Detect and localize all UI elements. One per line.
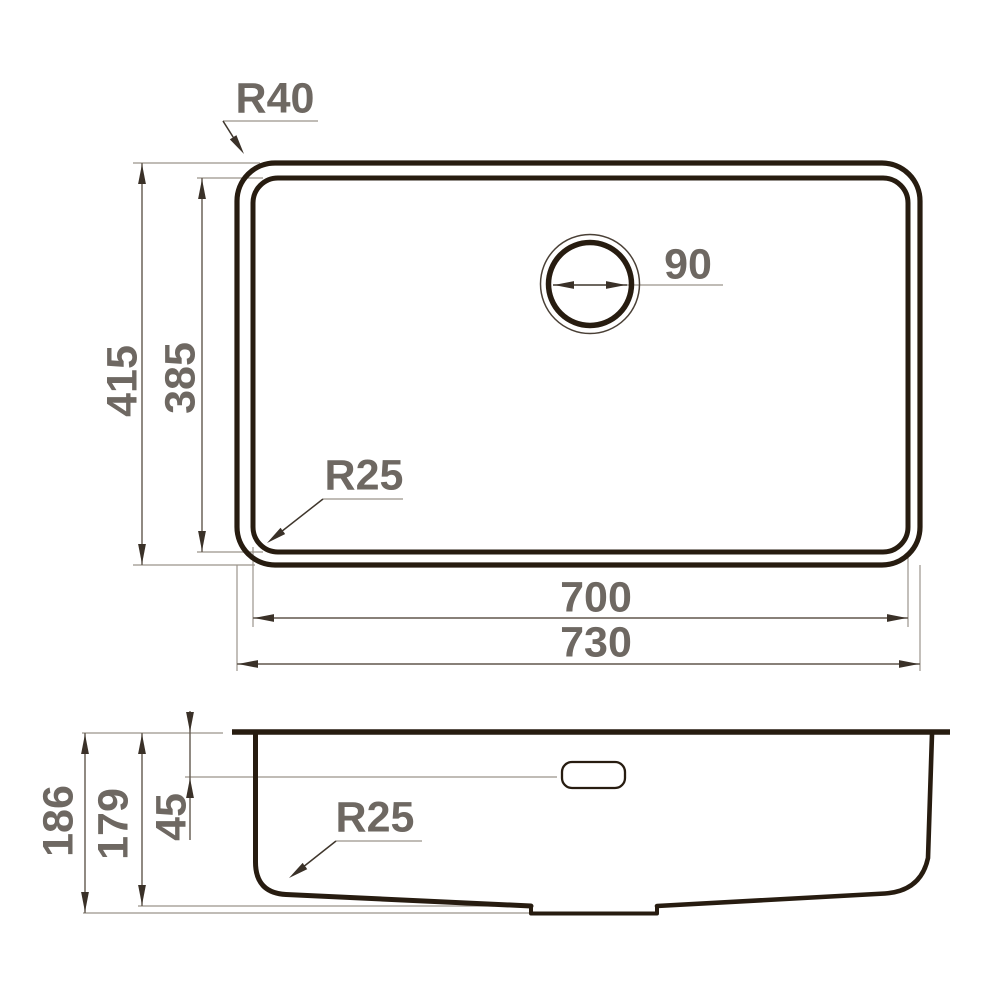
dim-label-drain-diameter: 90 (664, 244, 712, 287)
dim-label-bowl-depth: 179 (93, 788, 136, 860)
dim-label-corner-radius-inner: R25 (325, 455, 404, 498)
top-view-arrowheads (142, 134, 919, 664)
dim-label-inner-height: 385 (160, 342, 203, 414)
dim-label-outer-height: 415 (102, 345, 145, 417)
top-view-geometry (133, 121, 920, 671)
dim-label-overflow-drop: 45 (151, 793, 194, 841)
right-wall-and-bottom-profile (657, 734, 932, 906)
dim-label-inner-width: 700 (560, 577, 632, 620)
section-view-geometry (82, 711, 950, 914)
dim-label-bottom-corner-radius: R25 (336, 797, 415, 840)
overflow-slot (562, 762, 625, 788)
drawing-geometry (0, 0, 1000, 1000)
drain-hole-circle (549, 243, 632, 326)
drain-outer-circle (541, 235, 640, 334)
outer-rim-outline (237, 163, 920, 565)
sink-dimension-drawing: R40 90 415 385 R25 700 730 186 179 45 R2… (0, 0, 1000, 1000)
dim-label-outer-width: 730 (560, 622, 632, 665)
drain-recess-profile (531, 906, 657, 914)
dim-label-corner-radius-outer: R40 (236, 78, 315, 121)
top-view-dimension-lines (142, 163, 920, 664)
dim-label-total-depth: 186 (38, 785, 81, 857)
